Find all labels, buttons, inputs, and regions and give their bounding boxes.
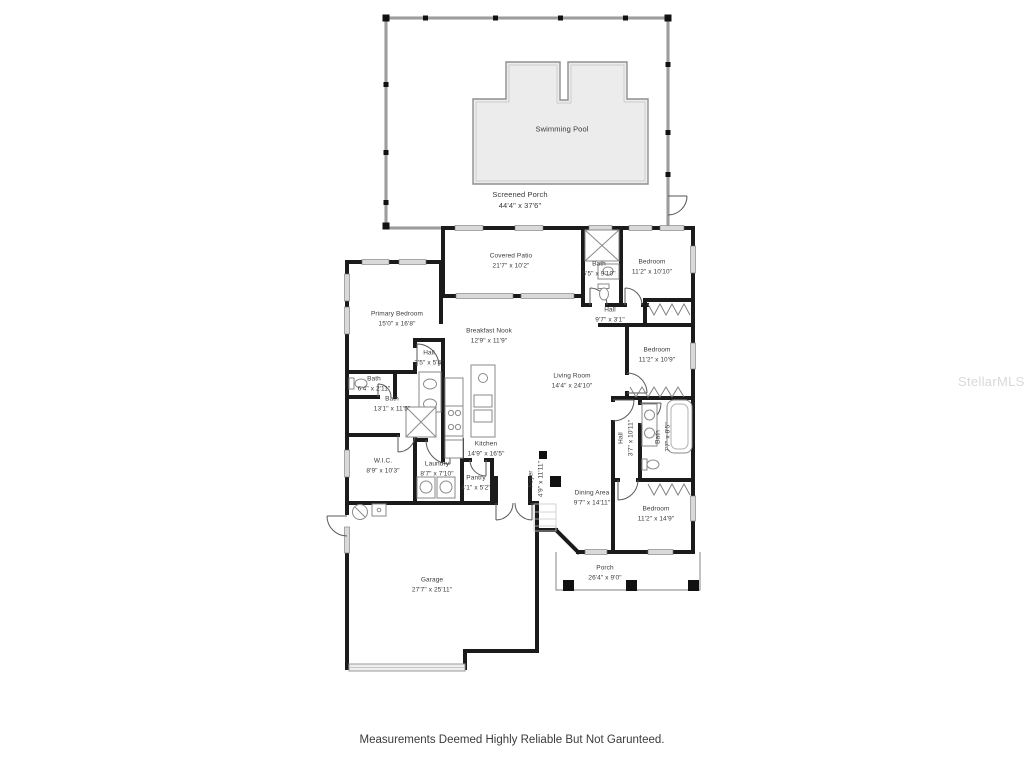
room-label-pantry: Pantry4'1" x 5'2" xyxy=(461,473,491,493)
disclaimer-text: Measurements Deemed Highly Reliable But … xyxy=(0,734,1024,746)
room-label-living-room: Living Room14'4" x 24'10" xyxy=(552,371,593,391)
floorplan-drawing xyxy=(0,0,1024,768)
room-label-bedroom-bottom: Bedroom11'2" x 14'9" xyxy=(638,504,674,524)
room-label-bath-primary: Bath13'1" x 11'5" xyxy=(374,394,410,414)
room-label-porch: Porch26'4" x 9'0" xyxy=(588,563,621,583)
room-label-screened-porch: Screened Porch44'4" x 37'6" xyxy=(492,189,547,212)
room-label-hall-back: Hall3'7" x 10'11" xyxy=(616,420,636,456)
stellar-mls-watermark: StellarMLS xyxy=(958,374,1024,389)
house-walls xyxy=(347,228,693,668)
room-label-hall-small: Hall3'5" x 5'4" xyxy=(414,348,444,368)
room-label-bedroom-top: Bedroom11'2" x 10'10" xyxy=(632,257,672,277)
kitchen-counter xyxy=(445,378,463,458)
room-label-primary-bedroom: Primary Bedroom15'0" x 16'8" xyxy=(371,309,423,329)
room-label-swimming-pool: Swimming Pool xyxy=(536,123,589,134)
room-label-wic: W.I.C.8'9" x 10'3" xyxy=(366,456,399,476)
room-label-bath-wc: Bath6'4" x 2'11" xyxy=(358,374,391,394)
room-label-garage: Garage27'7" x 25'11" xyxy=(412,575,452,595)
room-label-foyer: Foyer4'9" x 11'11" xyxy=(526,461,546,497)
room-label-bath-top: Bath5'5" x 9'10" xyxy=(582,259,615,279)
room-label-dining-area: Dining Area9'7" x 14'11" xyxy=(574,488,610,508)
room-label-laundry: Laundry8'7" x 7'10" xyxy=(420,459,453,479)
room-label-bedroom-middle: Bedroom11'2" x 10'9" xyxy=(639,345,675,365)
room-label-hall-top: Hall9'7" x 3'1" xyxy=(595,305,625,325)
room-label-kitchen: Kitchen14'9" x 16'5" xyxy=(468,439,505,459)
floorplan-page: { "watermark": "StellarMLS", "footer": "… xyxy=(0,0,1024,768)
room-label-bath-back: Bath7'7" x 8'5" xyxy=(653,422,673,452)
laundry-fixtures xyxy=(417,477,455,498)
kitchen-island xyxy=(471,365,495,437)
porch-screen-door xyxy=(668,196,687,215)
room-label-covered-patio: Covered Patio21'7" x 10'2" xyxy=(490,251,533,271)
room-label-breakfast-nook: Breakfast Nook12'9" x 11'9" xyxy=(466,326,512,346)
garage-utilities xyxy=(353,504,387,520)
garage-door xyxy=(349,664,465,671)
